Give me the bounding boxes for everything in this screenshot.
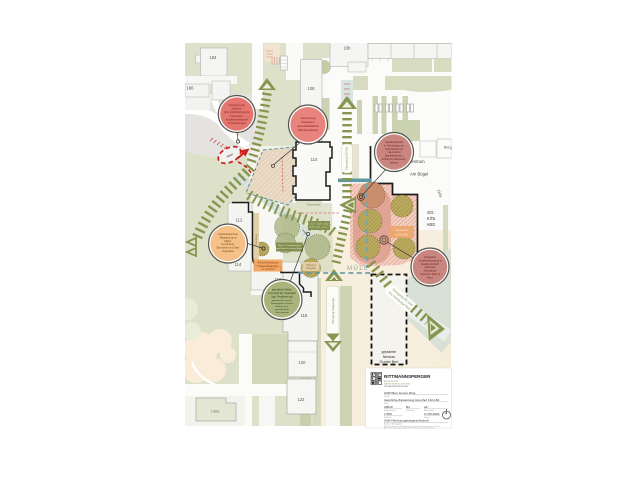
svg-text:Rundweg: Rundweg bbox=[254, 233, 258, 245]
svg-text:geplanter: geplanter bbox=[382, 350, 398, 354]
svg-text:Schallschutzwand in: Schallschutzwand in bbox=[418, 258, 442, 262]
svg-text:Übergänge: Übergänge bbox=[424, 269, 437, 273]
svg-text:Erhalt der Bestands-: Erhalt der Bestands- bbox=[382, 157, 406, 161]
svg-text:Bürg: Bürg bbox=[444, 146, 452, 150]
svg-text:bzw. Erschließung für: bzw. Erschließung für bbox=[224, 110, 250, 114]
svg-text:Sitzmöbel und Obst-: Sitzmöbel und Obst- bbox=[216, 246, 240, 250]
svg-text:im Innenhof: im Innenhof bbox=[261, 268, 274, 271]
svg-text:186: 186 bbox=[187, 86, 195, 91]
svg-text:naturnahen: naturnahen bbox=[387, 150, 401, 154]
svg-text:110: 110 bbox=[311, 157, 318, 162]
svg-text:ABG: ABG bbox=[427, 222, 436, 227]
svg-text:gemeinschaftl.: gemeinschaftl. bbox=[275, 308, 289, 311]
svg-text:Hochbeete,: Hochbeete, bbox=[221, 242, 235, 246]
svg-text:28010: 28010 bbox=[384, 405, 393, 409]
svg-text:1:500: 1:500 bbox=[384, 412, 392, 416]
svg-text:184: 184 bbox=[210, 55, 218, 60]
svg-text:136a: 136a bbox=[211, 410, 220, 414]
svg-text:KiTa ABG: KiTa ABG bbox=[396, 232, 410, 236]
svg-text:Vegetation: Vegetation bbox=[222, 249, 235, 253]
svg-text:Alltag':: Alltag': bbox=[224, 239, 232, 243]
svg-text:Zeichnung: Zeichnung bbox=[406, 410, 414, 412]
svg-text:Spiellandschaft: Spiellandschaft bbox=[385, 140, 403, 144]
svg-text:räumliche Zielsetzung Innenhof: räumliche Zielsetzung Innenhof 132-136 bbox=[384, 398, 439, 402]
svg-text:Bauherr / Auftraggeber: Bauherr / Auftraggeber bbox=[384, 423, 403, 426]
svg-text:B4: B4 bbox=[406, 405, 410, 409]
svg-text:PROJEKTENTWICKLUNG: PROJEKTENTWICKLUNG bbox=[384, 386, 408, 388]
svg-text:'viele Beete für urban Garden': 'viele Beete für urban Garden' bbox=[275, 247, 305, 250]
svg-text:Verlegung der: Verlegung der bbox=[228, 103, 245, 107]
svg-text:Natur: Natur bbox=[427, 275, 433, 279]
svg-text:& Paketdienste: & Paketdienste bbox=[228, 121, 247, 125]
svg-text:Raumkante: Raumkante bbox=[307, 203, 321, 207]
svg-text:Zufahrts-: Zufahrts- bbox=[231, 107, 242, 111]
svg-text:Kompost: Kompost bbox=[306, 267, 315, 270]
svg-text:Wiese 2: Insektenwiese: Wiese 2: Insektenwiese bbox=[278, 244, 302, 247]
svg-text:Übergang Tiefgarage: Übergang Tiefgarage bbox=[331, 297, 335, 324]
svg-text:gärtnerische versch.: gärtnerische versch. bbox=[272, 299, 292, 302]
svg-text:KiTa-Fläche mit: KiTa-Fläche mit bbox=[385, 147, 403, 151]
svg-text:Spiellandschaft:: Spiellandschaft: bbox=[421, 262, 440, 266]
svg-text:120: 120 bbox=[299, 360, 307, 365]
svg-text:zwischen Spiel &: zwischen Spiel & bbox=[420, 272, 440, 276]
svg-text:Neubau: Neubau bbox=[383, 355, 396, 359]
svg-text:112: 112 bbox=[236, 218, 243, 223]
svg-text:108: 108 bbox=[308, 86, 316, 91]
svg-text:Am Bügel: Am Bügel bbox=[410, 172, 428, 177]
svg-text:Humus &: Humus & bbox=[306, 265, 316, 267]
svg-text:GWH Ben Gurion Ring: GWH Ben Gurion Ring bbox=[384, 391, 416, 395]
svg-text:MÜLL: MÜLL bbox=[347, 265, 369, 272]
svg-text:Themengärten: Kräuter,: Themengärten: Kräuter, bbox=[270, 302, 293, 305]
svg-text:Integration: Integration bbox=[424, 255, 437, 259]
svg-text:Feuerwehr,: Feuerwehr, bbox=[230, 114, 244, 118]
svg-text:Übergang OG Ost: Übergang OG Ost bbox=[345, 147, 349, 170]
svg-text:Krankentransporte: Krankentransporte bbox=[226, 117, 249, 121]
svg-text:bäume: bäume bbox=[390, 160, 398, 164]
svg-text:17.05.2004: 17.05.2004 bbox=[424, 412, 440, 416]
svg-text:Spielplatz: Spielplatz bbox=[395, 228, 409, 232]
svg-text:Spielelementen.: Spielelementen. bbox=[385, 154, 404, 158]
svg-text:(ggf. Verpflanzung): (ggf. Verpflanzung) bbox=[271, 295, 292, 298]
svg-text:RITTMANNSPERGER: RITTMANNSPERGER bbox=[384, 374, 431, 379]
svg-text:'Gunter Ben': 'Gunter Ben' bbox=[379, 360, 399, 364]
svg-text:Blumen etc.): Blumen etc.) bbox=[276, 305, 289, 308]
svg-text:Gebäudekonzept: Gebäudekonzept bbox=[218, 232, 238, 236]
svg-text:122: 122 bbox=[298, 397, 306, 402]
svg-text:Obst anbauen: Obst anbauen bbox=[275, 311, 290, 314]
svg-text:a6: a6 bbox=[424, 405, 428, 409]
svg-text:118: 118 bbox=[301, 313, 308, 318]
svg-text:EG:: EG: bbox=[427, 210, 434, 215]
svg-text:'Begegnung im: 'Begegnung im bbox=[219, 235, 236, 239]
svg-text:10b: 10b bbox=[344, 46, 352, 51]
svg-text:(Wiesenpfaden): (Wiesenpfaden) bbox=[298, 128, 318, 132]
svg-text:114: 114 bbox=[235, 262, 242, 267]
svg-text:GWH Wohnungsbaugesellschaft: GWH Wohnungsbaugesellschaft bbox=[384, 419, 429, 423]
svg-text:attraktive Mitte:: attraktive Mitte: bbox=[272, 288, 293, 292]
svg-text:KiTa: KiTa bbox=[427, 216, 436, 221]
svg-text:fließende: fließende bbox=[425, 265, 436, 269]
svg-text:in Verbindung zur: in Verbindung zur bbox=[384, 143, 404, 147]
